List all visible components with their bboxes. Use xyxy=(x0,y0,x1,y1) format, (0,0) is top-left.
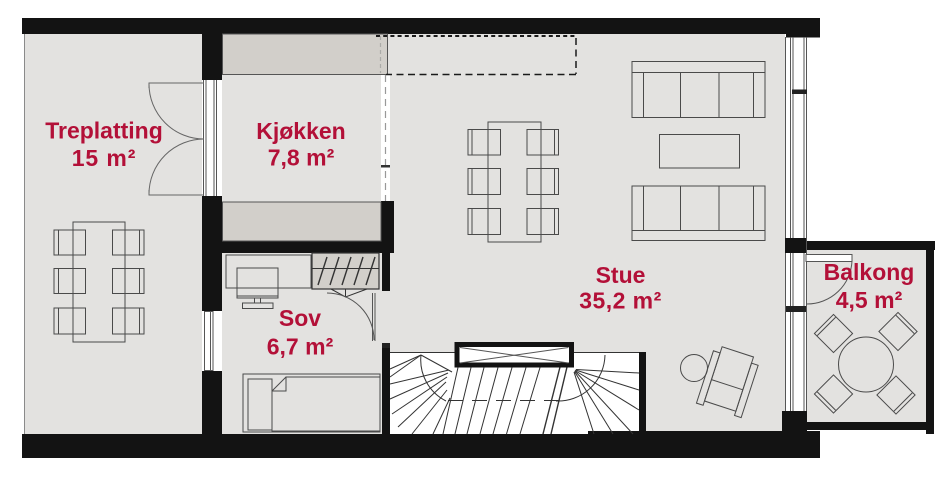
svg-text:Kjøkken: Kjøkken xyxy=(256,118,345,144)
svg-text:6,7 m²: 6,7 m² xyxy=(267,334,334,360)
svg-text:Sov: Sov xyxy=(279,305,321,331)
svg-text:15 m²: 15 m² xyxy=(72,145,137,171)
svg-text:Balkong: Balkong xyxy=(824,259,915,285)
svg-text:Stue: Stue xyxy=(596,262,646,288)
svg-text:Treplatting: Treplatting xyxy=(45,118,163,144)
svg-text:35,2 m²: 35,2 m² xyxy=(579,288,661,314)
svg-text:4,5 m²: 4,5 m² xyxy=(836,287,903,313)
svg-text:7,8 m²: 7,8 m² xyxy=(268,144,335,170)
